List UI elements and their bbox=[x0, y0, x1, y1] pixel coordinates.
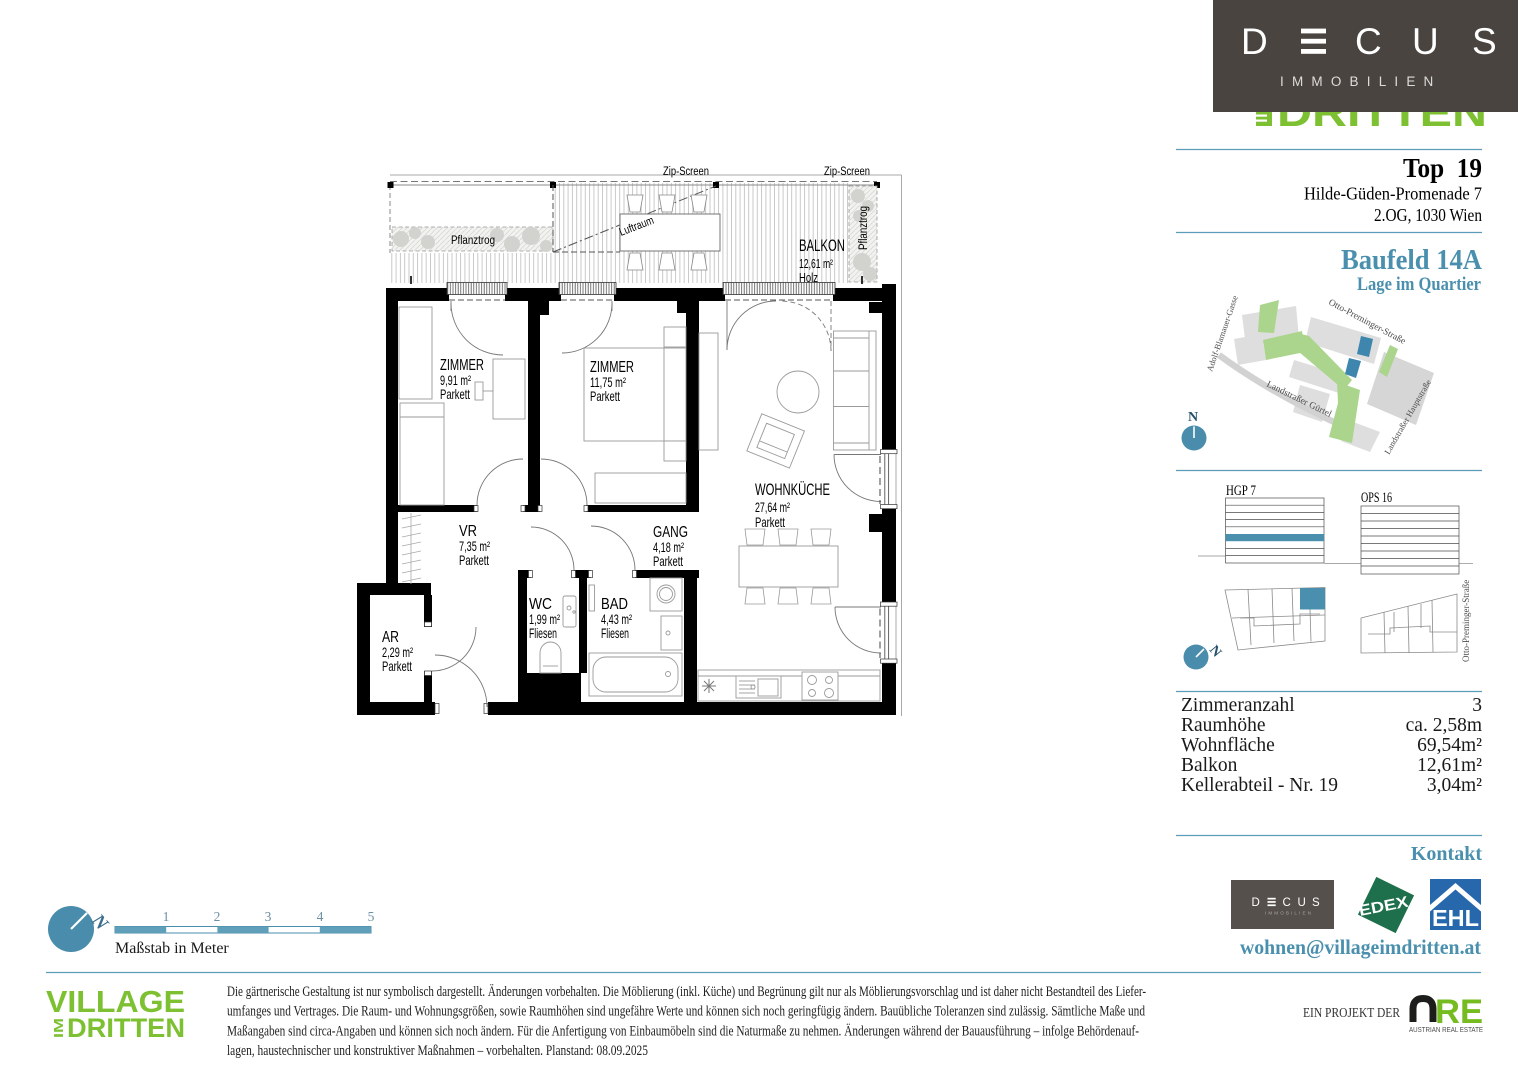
svg-text:DRITTEN: DRITTEN bbox=[67, 1013, 185, 1043]
svg-text:Kellerabteil - Nr. 19: Kellerabteil - Nr. 19 bbox=[1181, 775, 1338, 796]
svg-text:Parkett: Parkett bbox=[382, 658, 412, 674]
svg-text:Parkett: Parkett bbox=[755, 514, 785, 530]
svg-text:Die gärtnerische Gestaltung is: Die gärtnerische Gestaltung ist nur symb… bbox=[227, 983, 1146, 1000]
svg-text:Fliesen: Fliesen bbox=[601, 625, 629, 641]
svg-text:U: U bbox=[1298, 897, 1306, 909]
svg-text:C: C bbox=[1283, 897, 1291, 909]
svg-text:3: 3 bbox=[1472, 695, 1482, 716]
svg-text:1: 1 bbox=[163, 909, 170, 924]
svg-text:3,04m²: 3,04m² bbox=[1427, 775, 1482, 796]
svg-text:3: 3 bbox=[265, 909, 272, 924]
svg-text:umfanges und Vertrages. Die Ra: umfanges und Vertrages. Die Raum- und Wo… bbox=[227, 1004, 1146, 1020]
svg-text:Pflanztrog: Pflanztrog bbox=[451, 235, 495, 247]
svg-text:27,64 m²: 27,64 m² bbox=[755, 499, 790, 515]
svg-text:IMMOBILIEN: IMMOBILIEN bbox=[1265, 911, 1313, 916]
svg-text:WOHNKÜCHE: WOHNKÜCHE bbox=[755, 481, 830, 499]
svg-text:EIN PROJEKT DER: EIN PROJEKT DER bbox=[1303, 1006, 1401, 1021]
svg-text:OPS 16: OPS 16 bbox=[1361, 490, 1392, 506]
svg-text:S: S bbox=[1312, 897, 1320, 909]
svg-text:12,61m²: 12,61m² bbox=[1417, 755, 1482, 776]
svg-text:S: S bbox=[1472, 21, 1497, 62]
svg-text:BALKON: BALKON bbox=[799, 237, 845, 255]
svg-text:Maßangaben sind circa-Angaben: Maßangaben sind circa-Angaben und können… bbox=[227, 1022, 1139, 1039]
svg-text:Fliesen: Fliesen bbox=[529, 625, 557, 641]
svg-text:ca. 2,58m: ca. 2,58m bbox=[1406, 715, 1482, 736]
svg-text:Hilde-Güden-Promenade 7: Hilde-Güden-Promenade 7 bbox=[1304, 184, 1482, 204]
svg-text:Balkon: Balkon bbox=[1181, 755, 1238, 776]
svg-text:HGP 7: HGP 7 bbox=[1226, 483, 1256, 499]
svg-text:D: D bbox=[1241, 21, 1268, 62]
svg-text:12,61 m²: 12,61 m² bbox=[799, 257, 833, 271]
svg-text:2: 2 bbox=[214, 909, 221, 924]
svg-text:Wohnfläche: Wohnfläche bbox=[1181, 735, 1275, 756]
svg-text:4: 4 bbox=[317, 909, 324, 924]
svg-text:Pflanztrog: Pflanztrog bbox=[858, 206, 870, 250]
svg-text:lagen, haustechnischer und kon: lagen, haustechnischer und konstruktiver… bbox=[227, 1043, 648, 1059]
svg-text:Parkett: Parkett bbox=[459, 552, 489, 568]
svg-text:EHL: EHL bbox=[1432, 905, 1479, 931]
svg-text:Parkett: Parkett bbox=[590, 388, 620, 404]
svg-text:Parkett: Parkett bbox=[653, 553, 683, 569]
svg-text:Raumhöhe: Raumhöhe bbox=[1181, 715, 1265, 736]
svg-text:N: N bbox=[1188, 410, 1198, 425]
svg-text:wohnen@villageimdritten.at: wohnen@villageimdritten.at bbox=[1240, 935, 1481, 959]
svg-text:Kontakt: Kontakt bbox=[1411, 843, 1482, 865]
svg-text:Lage im Quartier: Lage im Quartier bbox=[1357, 274, 1481, 295]
svg-text:Baufeld 14A: Baufeld 14A bbox=[1341, 245, 1483, 276]
svg-text:Top 19: Top 19 bbox=[1403, 153, 1482, 183]
svg-text:69,54m²: 69,54m² bbox=[1417, 735, 1482, 756]
svg-text:IM: IM bbox=[51, 1018, 66, 1038]
svg-text:Zimmeranzahl: Zimmeranzahl bbox=[1181, 695, 1295, 716]
svg-text:Zip-Screen: Zip-Screen bbox=[824, 166, 870, 178]
svg-text:AUSTRIAN REAL ESTATE: AUSTRIAN REAL ESTATE bbox=[1409, 1025, 1483, 1034]
svg-text:U: U bbox=[1412, 21, 1439, 62]
svg-text:Maßstab in Meter: Maßstab in Meter bbox=[115, 940, 229, 957]
svg-text:2.OG, 1030 Wien: 2.OG, 1030 Wien bbox=[1374, 205, 1482, 225]
svg-text:IMMOBILIEN: IMMOBILIEN bbox=[1280, 74, 1442, 89]
svg-text:C: C bbox=[1355, 21, 1382, 62]
svg-text:5: 5 bbox=[368, 909, 375, 924]
svg-text:Zip-Screen: Zip-Screen bbox=[663, 166, 709, 178]
svg-text:D: D bbox=[1252, 897, 1260, 909]
svg-text:Parkett: Parkett bbox=[440, 386, 470, 402]
svg-text:Otto-Preminger-Straße: Otto-Preminger-Straße bbox=[1461, 580, 1471, 662]
